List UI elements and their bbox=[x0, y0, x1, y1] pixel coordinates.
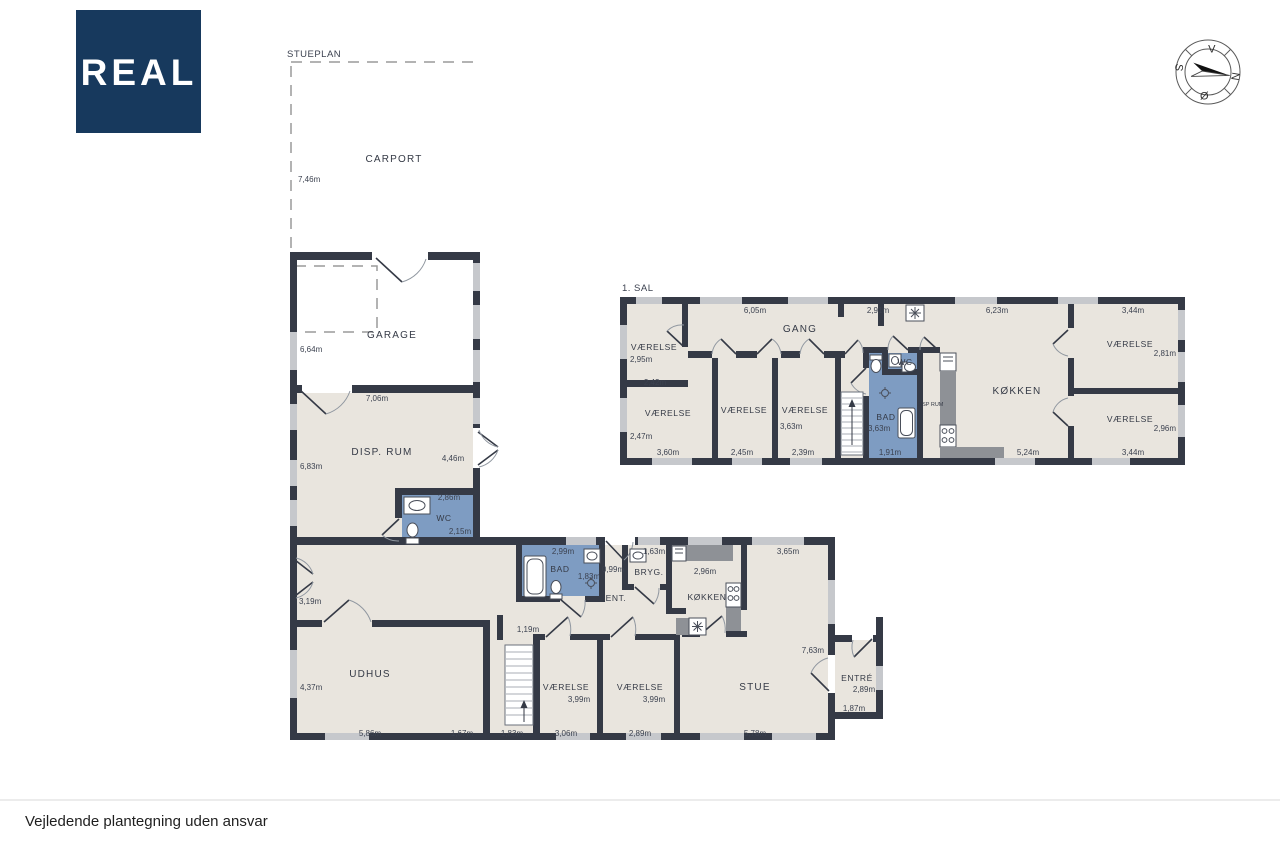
fridge-1sal-icon bbox=[940, 353, 956, 371]
compass-rose: N S V Ø bbox=[1168, 37, 1246, 108]
disp-rum-label: DISP. RUM bbox=[351, 447, 412, 458]
svg-text:1,83m: 1,83m bbox=[578, 572, 601, 581]
svg-text:4,37m: 4,37m bbox=[300, 683, 323, 692]
svg-text:2,89m: 2,89m bbox=[629, 729, 652, 738]
vaerelse-se-label: VÆRELSE bbox=[1107, 414, 1153, 424]
freezer-icon bbox=[676, 618, 706, 635]
floorplan-canvas: REAL N S V Ø STUEPLAN bbox=[0, 0, 1280, 853]
vaerelse-ne-label: VÆRELSE bbox=[1107, 339, 1153, 349]
svg-text:2,45m: 2,45m bbox=[731, 448, 754, 457]
svg-text:2,96m: 2,96m bbox=[694, 567, 717, 576]
svg-text:2,96m: 2,96m bbox=[1154, 424, 1177, 433]
svg-text:6,83m: 6,83m bbox=[300, 462, 323, 471]
svg-text:3,60m: 3,60m bbox=[657, 448, 680, 457]
svg-text:2,47m: 2,47m bbox=[630, 432, 653, 441]
first-floor-title: 1. SAL bbox=[622, 283, 654, 294]
ent-label: ENT. bbox=[606, 593, 627, 603]
svg-text:7,63m: 7,63m bbox=[802, 646, 825, 655]
vaerelse-c-label: VÆRELSE bbox=[721, 405, 767, 415]
compass-letter-bottom: S bbox=[1172, 63, 1185, 72]
svg-text:2,39m: 2,39m bbox=[792, 448, 815, 457]
stove-1sal-icon bbox=[940, 425, 956, 447]
svg-text:2,99m: 2,99m bbox=[552, 547, 575, 556]
svg-text:1,87m: 1,87m bbox=[843, 704, 866, 713]
bad-bathtub-icon bbox=[524, 556, 546, 597]
compass-icon: N S V Ø bbox=[1168, 37, 1246, 108]
real-logo: REAL bbox=[76, 10, 201, 133]
carport-dim: 7,46m bbox=[298, 175, 321, 184]
stue-label: STUE bbox=[739, 682, 770, 693]
svg-text:3,63m: 3,63m bbox=[868, 424, 891, 433]
svg-text:6,05m: 6,05m bbox=[744, 306, 767, 315]
gap-dim-1: 1,67m bbox=[451, 729, 474, 738]
svg-text:2,89m: 2,89m bbox=[853, 685, 876, 694]
kitchen-counter-top bbox=[672, 545, 733, 561]
kokken-1sal-label: KØKKEN bbox=[993, 386, 1042, 397]
vaerelse-w-label: VÆRELSE bbox=[645, 408, 691, 418]
wc-sink-icon bbox=[404, 497, 430, 514]
bad-1sal-toilet-icon bbox=[870, 355, 882, 373]
svg-text:5,78m: 5,78m bbox=[744, 729, 767, 738]
svg-text:2,86m: 2,86m bbox=[438, 493, 461, 502]
svg-text:2,15m: 2,15m bbox=[449, 527, 472, 536]
wc-toilet-icon bbox=[406, 523, 419, 544]
wc-1sal-label: WC bbox=[897, 357, 912, 367]
svg-text:3,44m: 3,44m bbox=[1122, 306, 1145, 315]
wc-label: WC bbox=[436, 513, 451, 523]
stair-gap-dim: 1,19m bbox=[517, 625, 540, 634]
svg-text:3,06m: 3,06m bbox=[555, 729, 578, 738]
bad-sink-icon bbox=[584, 549, 600, 563]
bryg-label: BRYG. bbox=[634, 567, 663, 577]
freezer-1sal-icon bbox=[906, 305, 924, 321]
svg-text:2,91m: 2,91m bbox=[867, 306, 890, 315]
entre-label: ENTRÉ bbox=[841, 673, 873, 683]
footer: Vejledende plantegning uden ansvar bbox=[0, 800, 1280, 830]
ground-floor-title: STUEPLAN bbox=[287, 49, 341, 60]
svg-text:7,06m: 7,06m bbox=[366, 394, 389, 403]
gang-label: GANG bbox=[783, 324, 817, 335]
ground-floor-stairs bbox=[505, 645, 533, 725]
vaerelse-c2-label: VÆRELSE bbox=[782, 405, 828, 415]
garage-floor bbox=[297, 260, 473, 385]
svg-text:2,42m: 2,42m bbox=[644, 378, 667, 387]
kokken-label: KØKKEN bbox=[687, 592, 726, 602]
logo-text: REAL bbox=[81, 52, 198, 93]
first-floor-plan: 1. SAL bbox=[620, 283, 1185, 465]
bad-label: BAD bbox=[550, 564, 569, 574]
svg-text:0,99m: 0,99m bbox=[602, 565, 625, 574]
svg-text:1,63m: 1,63m bbox=[643, 547, 666, 556]
floorplan-page: REAL N S V Ø STUEPLAN bbox=[0, 0, 1280, 853]
gap-dim-2: 1,83m bbox=[501, 729, 524, 738]
svg-text:3,99m: 3,99m bbox=[643, 695, 666, 704]
svg-text:3,63m: 3,63m bbox=[780, 422, 803, 431]
carport-label: CARPORT bbox=[365, 154, 422, 165]
vaerelse2-label: VÆRELSE bbox=[617, 682, 663, 692]
disp-rum-1sal-label: DISP RUM bbox=[917, 402, 944, 408]
svg-text:6,23m: 6,23m bbox=[986, 306, 1009, 315]
bad-1sal-label: BAD bbox=[876, 412, 895, 422]
bad-1sal-bathtub-icon bbox=[898, 408, 915, 438]
svg-text:3,65m: 3,65m bbox=[777, 547, 800, 556]
bad-toilet-icon bbox=[550, 581, 562, 600]
svg-text:5,24m: 5,24m bbox=[1017, 448, 1040, 457]
svg-text:2,95m: 2,95m bbox=[630, 355, 653, 364]
compass-letter-left: V bbox=[1208, 43, 1216, 55]
first-floor-stairs bbox=[841, 392, 863, 455]
svg-text:3,99m: 3,99m bbox=[568, 695, 591, 704]
svg-text:1,91m: 1,91m bbox=[879, 448, 902, 457]
vaerelse1-label: VÆRELSE bbox=[543, 682, 589, 692]
stove-icon bbox=[726, 583, 741, 607]
garage-label: GARAGE bbox=[367, 330, 417, 341]
footer-disclaimer: Vejledende plantegning uden ansvar bbox=[25, 813, 268, 830]
svg-text:5,86m: 5,86m bbox=[359, 729, 382, 738]
svg-text:6,64m: 6,64m bbox=[300, 345, 323, 354]
vaerelse-nw-label: VÆRELSE bbox=[631, 342, 677, 352]
hall-dim: 3,19m bbox=[299, 597, 322, 606]
svg-text:4,46m: 4,46m bbox=[442, 454, 465, 463]
svg-text:3,44m: 3,44m bbox=[1122, 448, 1145, 457]
kitchen-counter-right bbox=[726, 583, 741, 631]
svg-text:2,81m: 2,81m bbox=[1154, 349, 1177, 358]
compass-letter-right: Ø bbox=[1200, 91, 1209, 103]
udhus-label: UDHUS bbox=[349, 669, 391, 680]
